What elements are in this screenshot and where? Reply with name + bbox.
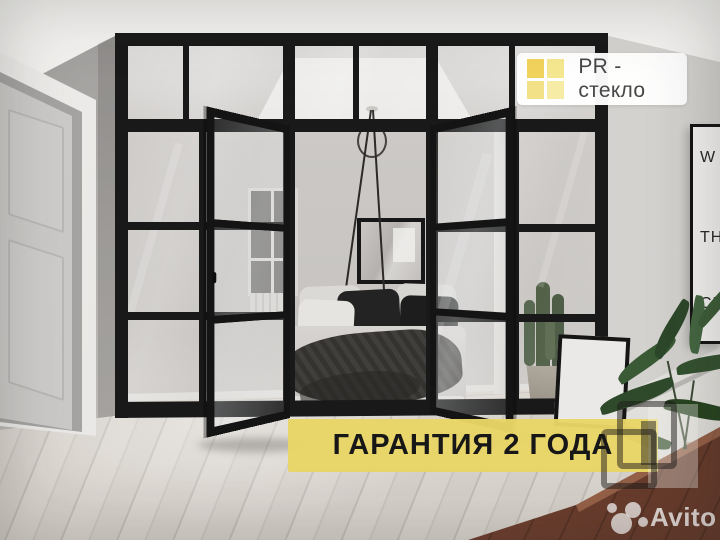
window-pane <box>547 81 564 100</box>
window-pane <box>527 81 544 100</box>
door-rail <box>436 308 505 320</box>
avito-logo-dot <box>625 502 641 518</box>
avito-logo-dot <box>607 503 617 513</box>
open-glass-door-left <box>207 106 290 437</box>
listing-photo: W TH CH ГАРАНТИЯ 2 ГОДА PR - стекло Avit… <box>0 0 720 540</box>
poster-line: W <box>700 149 716 167</box>
poster-line: TH <box>700 229 720 247</box>
door-handle <box>212 272 216 283</box>
wall-art-image <box>393 228 415 262</box>
warranty-banner-label: ГАРАНТИЯ 2 ГОДА <box>333 429 614 462</box>
glass-reflection <box>295 46 426 119</box>
partition-top-rail <box>115 33 608 46</box>
avito-logo-dot <box>638 517 648 527</box>
partition-left-stile <box>115 33 128 418</box>
open-glass-door-right <box>430 107 513 434</box>
white-door-panel <box>8 109 64 233</box>
door-rail <box>214 311 283 323</box>
left-panel-bar <box>199 132 206 410</box>
avito-watermark-label: Avito <box>650 502 717 533</box>
brand-badge: PR - стекло <box>517 53 687 105</box>
door-rail <box>214 219 283 231</box>
window-grid-icon <box>525 57 566 101</box>
door-rail <box>436 218 505 230</box>
transom-divider <box>183 46 189 119</box>
white-door-panel <box>8 239 64 401</box>
brand-badge-label: PR - стекло <box>578 55 687 103</box>
window-logo-icon <box>641 421 656 465</box>
window-pane <box>547 59 564 78</box>
wall-art <box>357 218 425 284</box>
partition-transom-rail <box>115 119 608 132</box>
window-pane <box>527 59 544 78</box>
transom-divider <box>353 46 359 119</box>
